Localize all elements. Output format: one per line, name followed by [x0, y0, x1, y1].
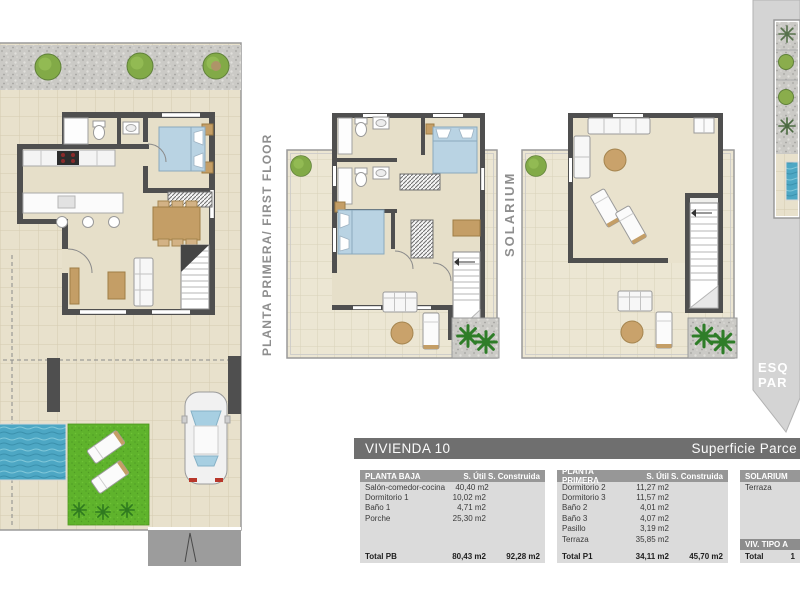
table-row: Dormitorio 2 11,27 m2 [557, 482, 728, 492]
chaise-icon [423, 313, 439, 349]
bush-icon [779, 90, 794, 105]
plant-icon [779, 26, 795, 42]
bush-icon [203, 53, 229, 79]
parcel-surface-title: Superficie Parce [692, 441, 797, 456]
table-header: PLANTA BAJA S. Útil S. Construida [360, 470, 545, 482]
room-util: 40,40 m2 [445, 483, 489, 492]
parcel-scheme-label-line2: PAR [758, 376, 800, 391]
table-header: PLANTA PRIMERA S. Útil S. Construida [557, 470, 728, 482]
bush-icon [291, 156, 312, 177]
round-table [604, 149, 626, 171]
plant-icon [72, 503, 86, 517]
solarium-plan [522, 113, 737, 358]
solarium-table: SOLARIUM Terraza VIV. TIPO A Total 1 [740, 470, 800, 563]
bush-icon [779, 55, 794, 70]
shower [338, 168, 352, 204]
table-header: SOLARIUM [740, 470, 800, 482]
sofa [618, 291, 652, 311]
ground-floor-plan [0, 43, 241, 566]
room-util: 4,01 m2 [623, 503, 669, 512]
driveway [148, 527, 241, 566]
table-row: Baño 3 4,07 m2 [557, 513, 728, 523]
stool-icon [109, 217, 120, 228]
first-floor-plan-label: PLANTA PRIMERA/ FIRST FLOOR [260, 134, 274, 356]
col-util: S. Útil [440, 472, 486, 481]
total-util: 80,43 m2 [440, 552, 486, 561]
room-util: 4,07 m2 [623, 514, 669, 523]
total-util: 1 [783, 552, 795, 561]
stairs [181, 245, 209, 309]
sink-icon [373, 167, 389, 179]
table-total-row: Total PB 80,43 m2 92,28 m2 [360, 550, 545, 563]
col-construida: S. Construida [486, 472, 540, 481]
plant-icon [779, 118, 795, 134]
room-label: Baño 2 [562, 503, 623, 512]
toilet-icon [355, 168, 367, 187]
room-label: Baño 3 [562, 514, 623, 523]
col-util: S. Útil [623, 472, 669, 481]
bush-icon [526, 156, 547, 177]
sink-icon [123, 122, 139, 134]
bed-icon [433, 127, 477, 173]
planter [452, 318, 499, 358]
cabinet [453, 220, 480, 236]
total-label: Total P1 [562, 552, 623, 561]
total-label: Total [745, 552, 783, 561]
table-total-row: Total P1 34,11 m2 45,70 m2 [557, 550, 728, 563]
room-label: Pasillo [562, 524, 623, 533]
sink-icon [373, 117, 389, 129]
dining-area [153, 201, 200, 246]
table-row: Dormitorio 3 11,57 m2 [557, 492, 728, 502]
room-util: 11,27 m2 [623, 483, 669, 492]
col-construida: S. Construida [669, 472, 723, 481]
room-label: Salón-comedor-cocina [365, 483, 445, 492]
sofa [134, 258, 153, 306]
toilet-icon [93, 121, 105, 140]
stool-icon [57, 217, 68, 228]
room-util: 11,57 m2 [623, 493, 669, 502]
plant-icon [712, 331, 734, 353]
table-row: Dormitorio 1 10,02 m2 [360, 492, 545, 502]
car-icon [182, 392, 230, 484]
table-row: Terraza [740, 482, 800, 492]
pool [0, 424, 66, 480]
table-row: Porche 25,30 m2 [360, 513, 545, 523]
round-table [391, 322, 413, 344]
first-floor-plan [287, 113, 499, 358]
bush-icon [35, 54, 61, 80]
chaise-icon [656, 312, 672, 348]
table-row: Baño 2 4,01 m2 [557, 503, 728, 513]
round-table [621, 321, 643, 343]
viv-tipo-header: VIV. TIPO A [740, 539, 800, 550]
title-bar: VIVIENDA 10 Superficie Parce [354, 438, 800, 459]
porch-wall [228, 356, 241, 414]
total-label: Total PB [365, 552, 440, 561]
room-label: Dormitorio 2 [562, 483, 623, 492]
planta-primera-table: PLANTA PRIMERA S. Útil S. Construida Dor… [557, 470, 728, 563]
stairs [690, 203, 718, 308]
table-title: PLANTA BAJA [365, 472, 440, 481]
dining-table [153, 207, 200, 240]
porch-wall [47, 358, 60, 412]
plant-icon [120, 503, 134, 517]
wardrobe-icon [411, 220, 433, 258]
garden [68, 424, 149, 525]
room-label: Terraza [745, 483, 795, 492]
total-construida: 92,28 m2 [486, 552, 540, 561]
room-label: Baño 1 [365, 503, 440, 512]
sofa [383, 292, 417, 312]
room-label: Terraza [562, 535, 623, 544]
parcel-scheme-label: ESQ PAR [758, 361, 800, 391]
stove-icon [57, 151, 79, 165]
room-util: 25,30 m2 [440, 514, 486, 523]
shower [338, 118, 352, 154]
table-title: SOLARIUM [745, 472, 795, 481]
table-row: Salón-comedor-cocina 40,40 m2 [360, 482, 545, 492]
table-row: Baño 1 4,71 m2 [360, 503, 545, 513]
shower [64, 118, 88, 144]
room-label: Porche [365, 514, 440, 523]
total-construida: 45,70 m2 [669, 552, 723, 561]
pool [786, 162, 798, 200]
room-util: 4,71 m2 [440, 503, 486, 512]
coffee-table [108, 272, 125, 299]
bush-icon [127, 53, 153, 79]
table-row: Terraza 35,85 m2 [557, 534, 728, 544]
planter [688, 318, 737, 358]
room-label: Dormitorio 1 [365, 493, 440, 502]
viv-tipo-label: VIV. TIPO A [745, 540, 788, 549]
bed-icon [338, 210, 384, 254]
solarium-plan-label: SOLARIUM [502, 172, 517, 257]
parcel-thumbnail [774, 20, 800, 218]
room-util: 35,85 m2 [623, 535, 669, 544]
room-label: Dormitorio 3 [562, 493, 623, 502]
room-util: 10,02 m2 [440, 493, 486, 502]
sofa [588, 118, 650, 134]
room-util: 3,19 m2 [623, 524, 669, 533]
plant-icon [96, 505, 110, 519]
planta-baja-table: PLANTA BAJA S. Útil S. Construida Salón-… [360, 470, 545, 563]
stool-icon [83, 217, 94, 228]
table-row: Pasillo 3,19 m2 [557, 524, 728, 534]
parcel-scheme-label-line1: ESQ [758, 361, 800, 376]
toilet-icon [355, 118, 367, 137]
dwelling-title: VIVIENDA 10 [365, 441, 450, 456]
total-util: 34,11 m2 [623, 552, 669, 561]
wardrobe-icon [400, 174, 440, 190]
table-total-row: Total 1 [740, 550, 800, 563]
plant-icon [476, 332, 497, 353]
tv-unit [70, 268, 79, 304]
bed-icon [159, 127, 205, 171]
plant-icon [693, 325, 715, 347]
